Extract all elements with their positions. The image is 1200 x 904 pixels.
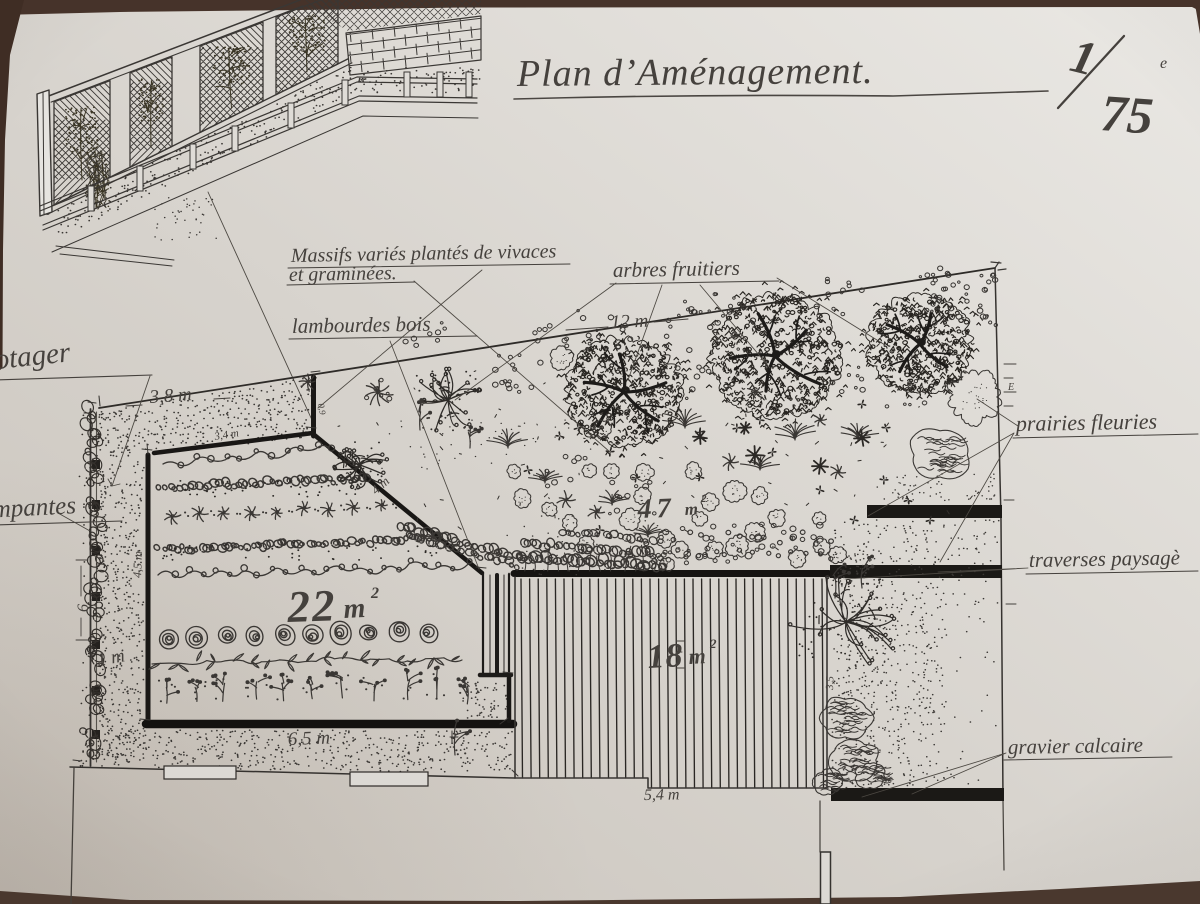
- svg-text:2: 2: [370, 585, 379, 602]
- svg-text:traverses paysagè: traverses paysagè: [1029, 545, 1180, 572]
- svg-text:12 m: 12 m: [610, 311, 648, 333]
- svg-text:E: E: [1007, 382, 1014, 393]
- svg-text:0,9: 0,9: [316, 403, 328, 416]
- svg-text:6: 6: [75, 604, 92, 612]
- svg-text:3,8 m: 3,8 m: [148, 384, 193, 408]
- svg-text:arbres fruitiers: arbres fruitiers: [613, 256, 740, 282]
- svg-text:e: e: [1160, 55, 1167, 72]
- svg-text:prairies fleuries: prairies fleuries: [1014, 409, 1158, 436]
- svg-text:75: 75: [1099, 85, 1155, 145]
- svg-text:4,5 m: 4,5 m: [130, 551, 145, 578]
- svg-text:lambourdes bois: lambourdes bois: [292, 312, 431, 338]
- svg-text:m: m: [688, 643, 706, 669]
- svg-text:2: 2: [709, 636, 717, 651]
- svg-text:gravier calcaire: gravier calcaire: [1008, 733, 1144, 759]
- svg-text:47: 47: [636, 493, 676, 525]
- svg-text:3,5: 3,5: [824, 675, 837, 691]
- svg-text:18: 18: [646, 637, 684, 676]
- svg-text:2: 2: [700, 493, 707, 505]
- svg-text:m: m: [343, 593, 366, 625]
- svg-text:6,5 m: 6,5 m: [287, 728, 330, 750]
- svg-text:Plan d’Aménagement.: Plan d’Aménagement.: [516, 50, 874, 95]
- svg-text:5,4 m: 5,4 m: [644, 786, 680, 804]
- svg-text:m: m: [684, 499, 698, 519]
